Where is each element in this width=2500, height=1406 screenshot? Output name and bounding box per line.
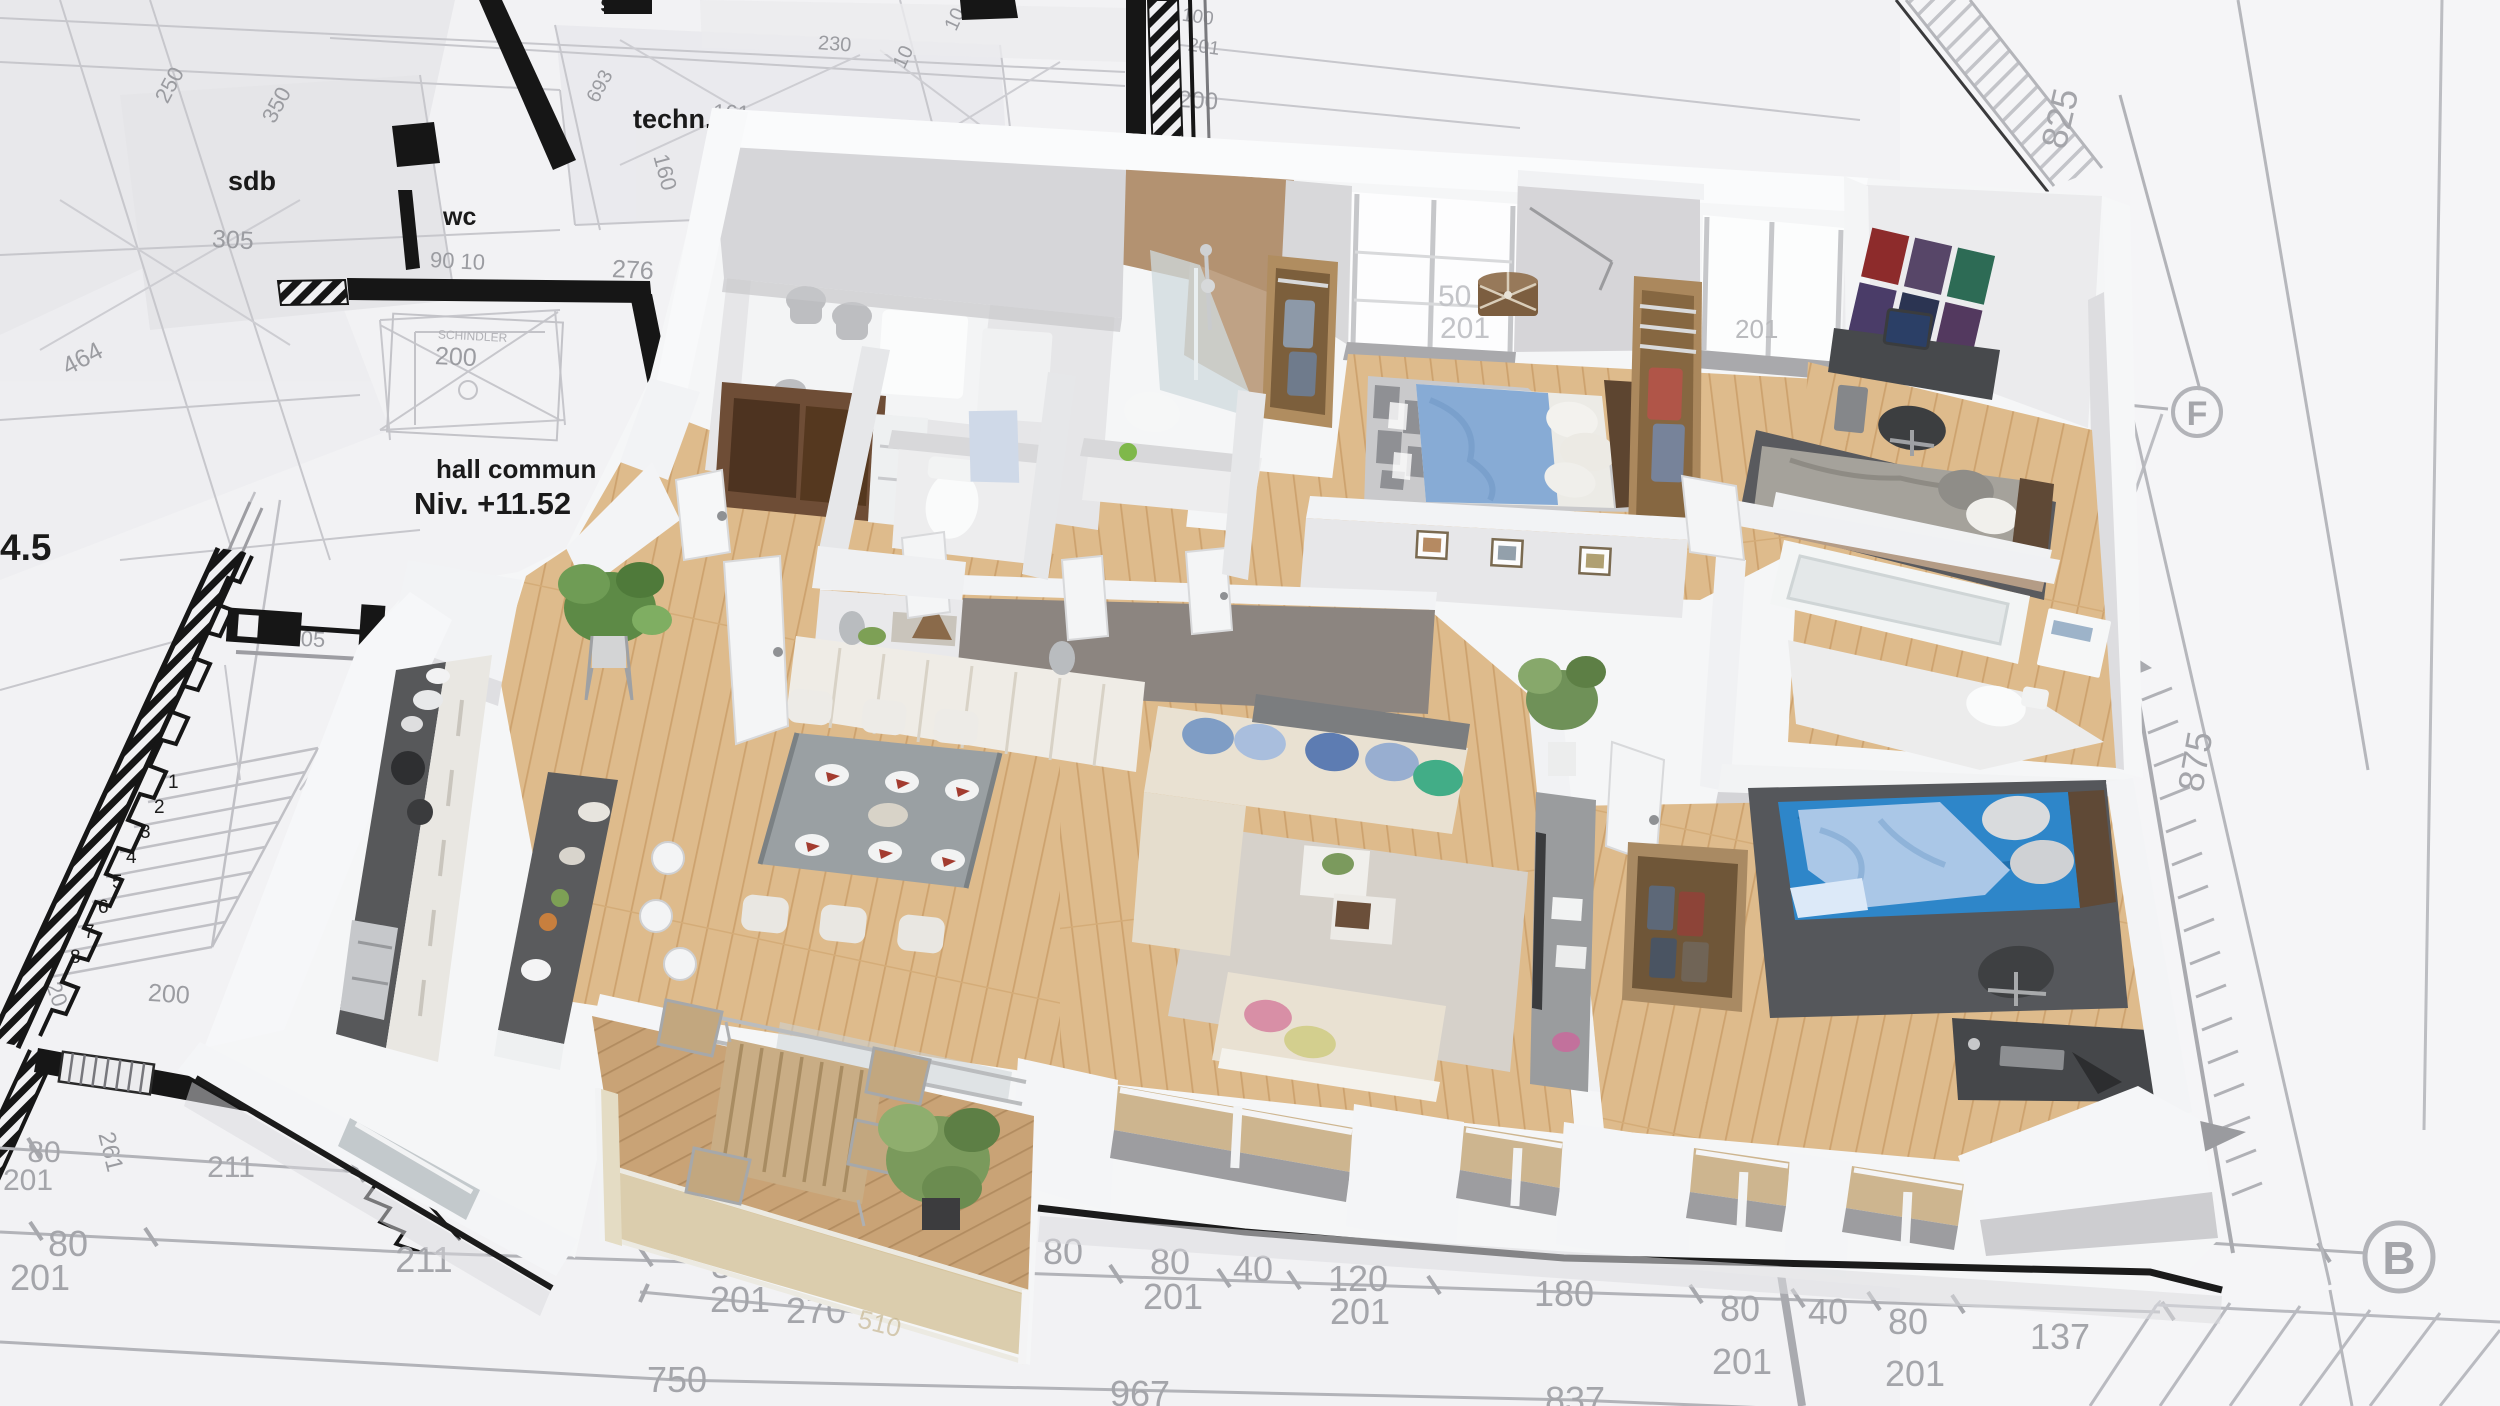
svg-text:Niv. +11.52: Niv. +11.52 bbox=[414, 486, 571, 521]
svg-text:967: 967 bbox=[1110, 1373, 1170, 1406]
svg-text:80: 80 bbox=[1720, 1288, 1760, 1329]
svg-text:1: 1 bbox=[168, 772, 179, 793]
svg-text:137: 137 bbox=[2030, 1316, 2090, 1357]
svg-text:F: F bbox=[2187, 395, 2208, 433]
svg-text:201: 201 bbox=[10, 1257, 70, 1298]
svg-text:200: 200 bbox=[434, 342, 477, 372]
svg-text:4.5: 4.5 bbox=[0, 527, 51, 568]
svg-text:200: 200 bbox=[1177, 86, 1219, 116]
svg-text:wc: wc bbox=[442, 203, 476, 231]
svg-text:sdb: sdb bbox=[228, 166, 276, 196]
svg-text:211: 211 bbox=[207, 1151, 255, 1184]
svg-text:50: 50 bbox=[1438, 280, 1471, 313]
svg-text:201: 201 bbox=[1712, 1341, 1772, 1382]
svg-text:201: 201 bbox=[3, 1164, 53, 1197]
svg-text:750: 750 bbox=[647, 1359, 707, 1400]
svg-text:200: 200 bbox=[147, 979, 191, 1010]
svg-text:80: 80 bbox=[1888, 1301, 1928, 1342]
svg-text:201: 201 bbox=[1330, 1291, 1390, 1332]
svg-text:201: 201 bbox=[1735, 314, 1778, 344]
svg-text:hall commun: hall commun bbox=[436, 454, 596, 484]
svg-text:230: 230 bbox=[817, 32, 852, 56]
svg-text:201: 201 bbox=[1143, 1276, 1203, 1317]
svg-text:100: 100 bbox=[1181, 5, 1215, 30]
svg-text:techn.: techn. bbox=[633, 104, 713, 134]
svg-text:201: 201 bbox=[1885, 1353, 1945, 1394]
svg-text:837: 837 bbox=[1545, 1379, 1605, 1406]
svg-text:2: 2 bbox=[154, 797, 165, 818]
svg-text:305: 305 bbox=[211, 225, 254, 255]
svg-text:B: B bbox=[2382, 1232, 2415, 1284]
svg-text:90 10: 90 10 bbox=[429, 247, 485, 275]
svg-text:201: 201 bbox=[1440, 312, 1490, 345]
svg-text:6: 6 bbox=[98, 897, 109, 918]
